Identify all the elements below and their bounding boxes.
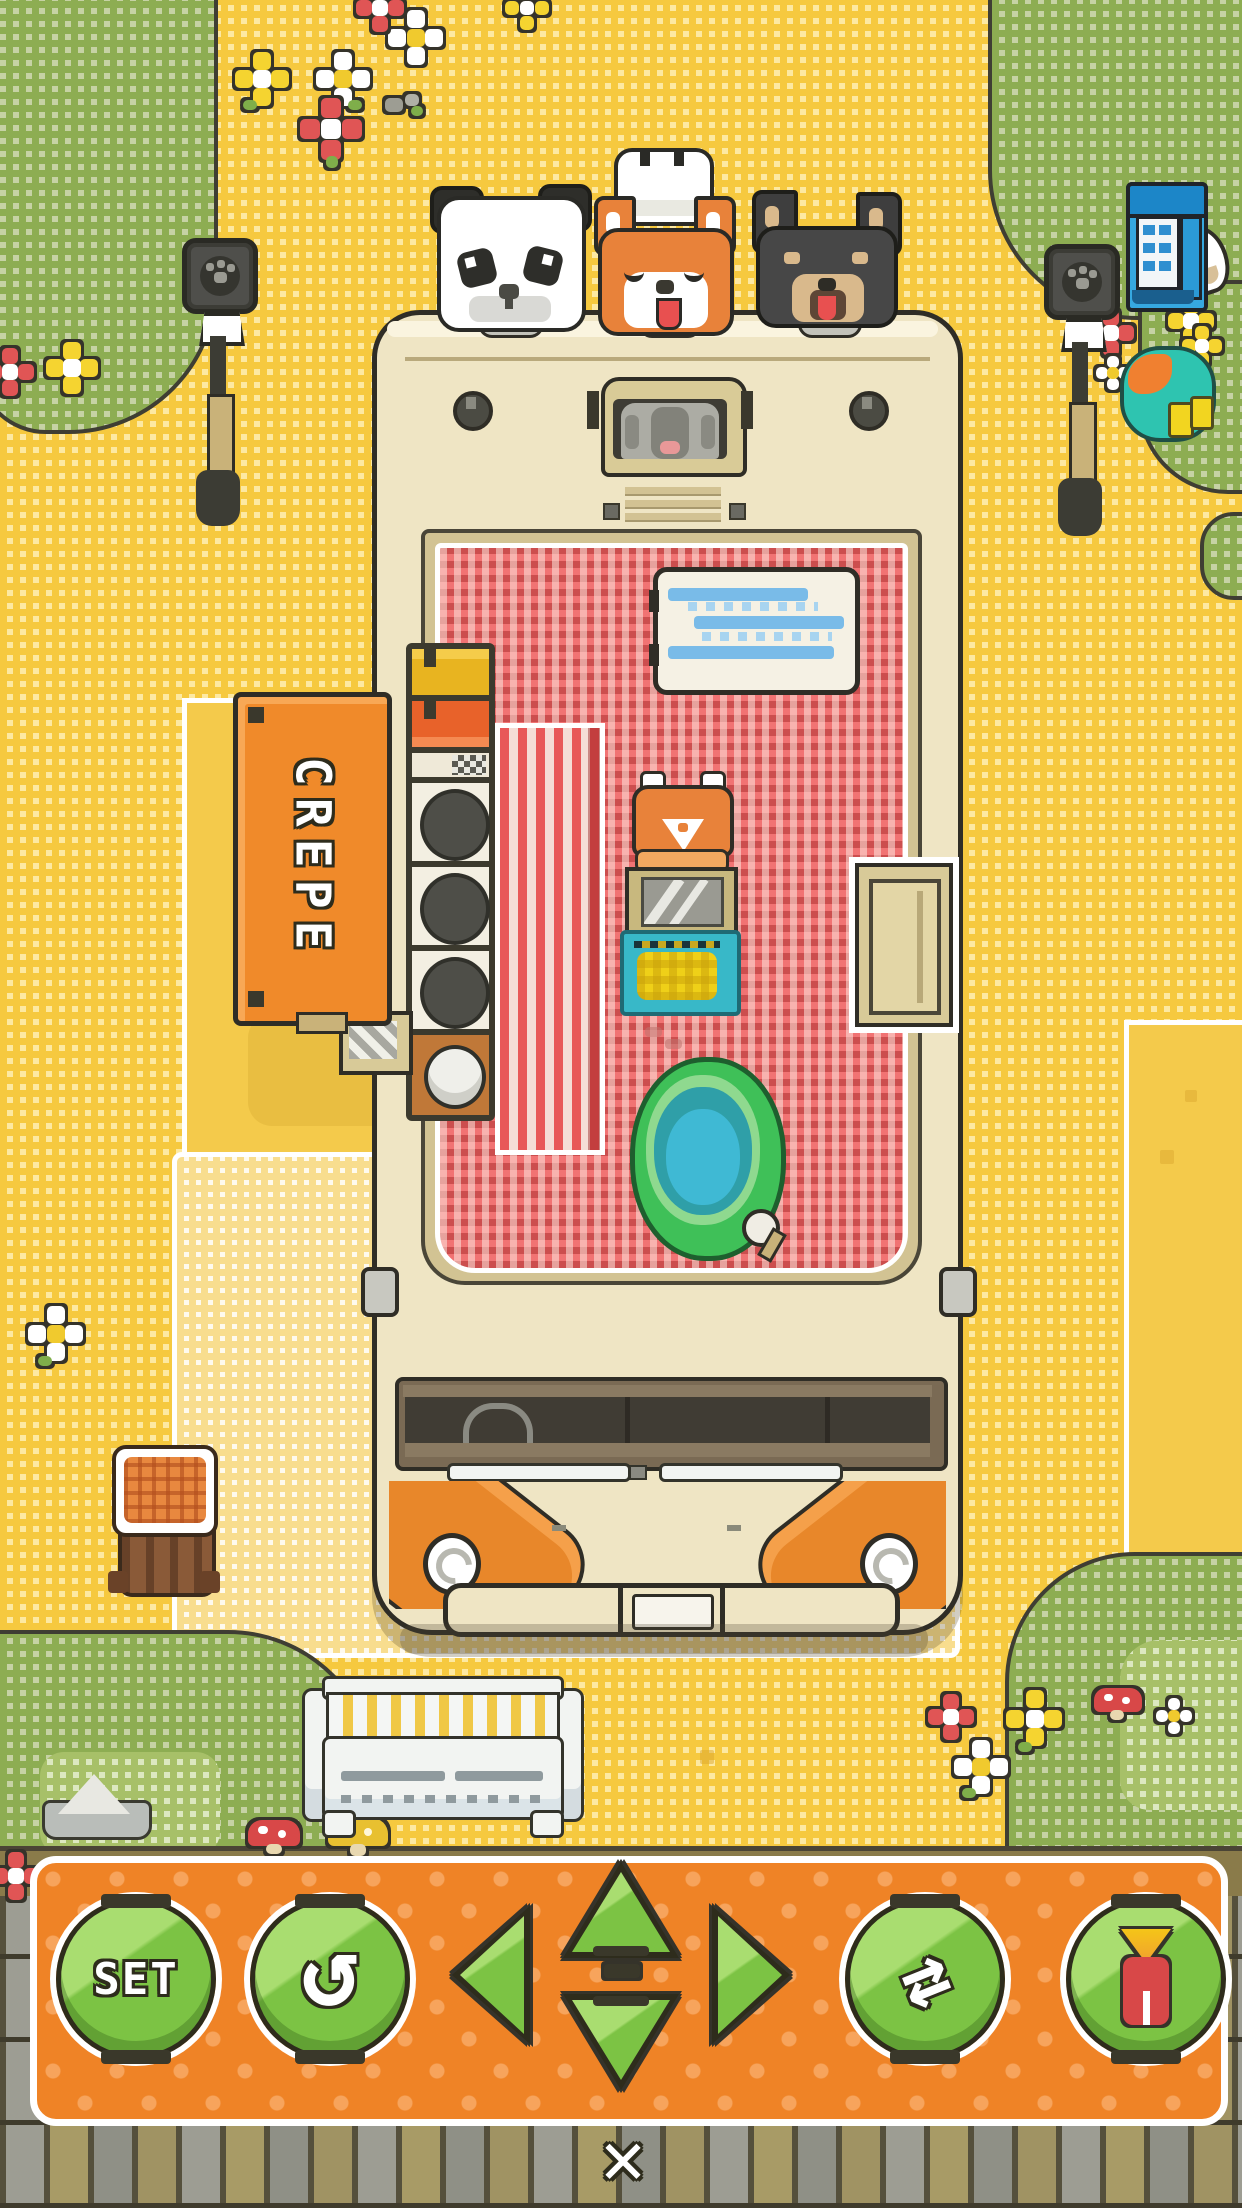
close-button[interactable]: ✕	[578, 2116, 668, 2200]
shop-button[interactable]	[1066, 1898, 1226, 2060]
bshiba-ear-inner	[765, 206, 779, 228]
vent-bolt	[603, 503, 620, 520]
mirror-left	[361, 1267, 399, 1317]
dpad-center	[604, 1964, 640, 1978]
cooler-hinge	[649, 644, 659, 666]
bench-foot	[530, 1810, 564, 1838]
cooler-box	[653, 567, 860, 695]
footprint	[645, 1027, 662, 1037]
lamp-foot	[1058, 478, 1102, 536]
sign-rod	[296, 1012, 348, 1034]
lamp-head	[182, 238, 258, 314]
bucket-water-light	[666, 1109, 740, 1205]
plate-cell	[412, 1035, 489, 1115]
roof-knob	[453, 391, 493, 431]
wiper	[659, 1463, 843, 1482]
paw-icon	[1062, 262, 1102, 302]
mirror-right	[939, 1267, 977, 1317]
ground-speckle	[1185, 1090, 1197, 1102]
yellow-flower	[505, 0, 549, 30]
griddle-cell	[412, 783, 489, 861]
street-lamp-right	[1044, 244, 1116, 556]
seat-groove	[455, 1771, 543, 1781]
crepe-sign-text: CREPE	[238, 697, 387, 1021]
vending-door	[1180, 216, 1202, 300]
knob-slot	[862, 397, 872, 409]
white-daisy	[28, 1306, 84, 1362]
panda-mouth	[505, 299, 513, 309]
bshiba-nose	[818, 278, 836, 291]
panda-eye-patch	[455, 246, 499, 290]
bench-slats	[326, 1692, 560, 1742]
bench-seat	[322, 1736, 564, 1820]
steering-wheel	[463, 1403, 533, 1443]
door-line	[917, 891, 923, 1003]
water-bucket	[630, 1057, 776, 1251]
truck-shadow	[400, 1624, 928, 1654]
pebbles	[385, 94, 425, 116]
roof-window	[613, 399, 727, 459]
batter-cart	[620, 930, 741, 1016]
black-shiba	[750, 186, 896, 330]
seat-dots	[341, 1795, 545, 1803]
red-mushroom	[248, 1820, 300, 1854]
white-daisy-small	[1156, 1698, 1192, 1734]
griddle-cell	[412, 867, 489, 945]
roof-knob	[849, 391, 889, 431]
street-lamp-left	[182, 238, 254, 538]
hood-dash	[727, 1525, 741, 1531]
panda-eye	[464, 256, 476, 268]
picnic-set	[1120, 346, 1212, 438]
paw-icon	[200, 256, 240, 296]
griddle-burner	[420, 957, 490, 1029]
arrow-right-icon	[718, 1916, 782, 2034]
yellow-flower	[1006, 1690, 1064, 1748]
shelf-crate-yellow	[412, 649, 489, 695]
seat-groove	[341, 1771, 445, 1781]
picnic-stool	[1190, 396, 1214, 430]
crate-notch	[424, 701, 436, 719]
cart-zip	[634, 941, 720, 948]
chef-nose	[678, 823, 688, 832]
plate	[424, 1045, 486, 1109]
yellow-flower	[235, 52, 289, 106]
shelf-tiles	[412, 753, 489, 777]
cooler-stripe	[694, 616, 844, 629]
crepe-sign: CREPE	[233, 692, 392, 1026]
koala-ear	[625, 415, 639, 449]
knob-slot	[466, 397, 476, 409]
truck-rear-seam	[405, 357, 930, 361]
checker-tile	[452, 755, 486, 775]
stump-root	[200, 1571, 220, 1593]
undo-button[interactable]: ↺	[250, 1898, 410, 2060]
cycle-button[interactable]: ⇄	[845, 1898, 1005, 2060]
rock	[42, 1774, 146, 1834]
game-screen: CREPE SET ↺	[0, 0, 1242, 2208]
bshiba-tongue	[818, 296, 836, 320]
dashboard	[405, 1443, 930, 1457]
vent-slat	[625, 487, 721, 496]
waffle-stump	[112, 1445, 216, 1595]
panda-nose	[499, 284, 519, 299]
bshiba-muzzle	[792, 274, 864, 322]
wiper	[447, 1463, 631, 1482]
hat-notch	[640, 150, 650, 166]
move-left-button[interactable]	[452, 1906, 530, 2044]
ground-speckle	[700, 1750, 714, 1764]
windshield-glass	[405, 1397, 930, 1443]
windshield-top-trim	[403, 1385, 932, 1397]
griddle-burner	[420, 789, 490, 861]
koala-face	[621, 403, 719, 459]
red-flower	[300, 98, 362, 160]
hood-dash	[552, 1525, 566, 1531]
wiper-hinge	[629, 1465, 647, 1480]
shop-stall-icon	[1119, 1929, 1173, 2029]
move-down-button[interactable]	[563, 1994, 679, 2090]
vent-bolt	[729, 503, 746, 520]
vent-slat	[625, 500, 721, 509]
bench	[302, 1676, 578, 1834]
stump-root	[108, 1571, 128, 1593]
white-daisy	[954, 1740, 1008, 1794]
waffle	[124, 1457, 206, 1523]
arrow-down-icon	[572, 2000, 670, 2080]
side-door-alcove	[855, 863, 953, 1027]
roof-window-frame	[601, 377, 747, 477]
sign-bolt	[248, 707, 264, 723]
griddle-burner	[420, 873, 490, 945]
chef-shiba-top	[632, 785, 730, 867]
stump-top	[112, 1445, 218, 1537]
yellow-flower	[46, 342, 98, 394]
griddle-cell	[412, 951, 489, 1029]
glass-divider	[825, 1397, 830, 1443]
move-up-button[interactable]	[563, 1862, 679, 1958]
shiba-nose	[656, 280, 674, 294]
set-button-label: SET	[61, 1903, 211, 2055]
panda-eye-patch	[521, 244, 565, 288]
windshield	[395, 1377, 948, 1471]
shiba-chef	[594, 148, 730, 330]
cooler-stripe	[668, 646, 834, 659]
cooler-stripe	[668, 588, 808, 601]
ground-speckle	[1160, 1150, 1174, 1164]
shiba-head	[598, 228, 734, 336]
vending-roof	[1126, 182, 1208, 218]
panda	[425, 158, 590, 330]
arrow-up-icon	[572, 1872, 670, 1952]
koala-ear	[701, 415, 715, 449]
bench-foot	[322, 1810, 356, 1838]
chef-head	[632, 785, 734, 857]
cooler-dots	[688, 602, 818, 611]
red-mushroom	[1094, 1688, 1142, 1720]
lamp-pole	[210, 336, 226, 394]
glass-divider	[625, 1397, 630, 1443]
shiba-tongue	[656, 298, 682, 330]
bshiba-brow	[784, 252, 800, 264]
footprint	[665, 1039, 682, 1049]
griddle-shelf	[406, 643, 495, 1121]
arrow-left-icon	[460, 1916, 524, 2034]
window-pillar	[741, 391, 753, 429]
crepe-truck	[372, 310, 963, 1635]
striped-runner-rug	[495, 723, 605, 1155]
koala-mouth	[660, 441, 680, 454]
bracket-hinge	[349, 1021, 397, 1059]
window-pillar	[587, 391, 599, 429]
vent-slat	[625, 513, 721, 522]
lamp-head	[1044, 244, 1120, 320]
red-flower	[928, 1694, 974, 1740]
crepe-dough	[637, 952, 717, 1000]
hat-notch	[674, 150, 684, 166]
panda-head	[437, 196, 586, 332]
vending-base	[1132, 290, 1194, 304]
undo-icon: ↺	[255, 1895, 405, 2047]
vending-machine	[1126, 182, 1208, 312]
griddle-plate	[641, 877, 724, 927]
lamp-pole-wood	[207, 394, 235, 476]
cooler-dots	[702, 632, 832, 641]
panda-eye	[542, 254, 554, 266]
crepe-griddle-table	[625, 867, 738, 937]
crate-notch	[424, 649, 436, 667]
shelf-crate-orange	[412, 701, 489, 747]
lamp-pole	[1072, 342, 1088, 402]
move-right-button[interactable]	[712, 1906, 790, 2044]
bshiba-head	[756, 226, 898, 328]
side-door	[869, 879, 941, 1015]
sign-bolt	[248, 991, 264, 1007]
lamp-foot	[196, 470, 240, 526]
rock-top	[58, 1774, 130, 1814]
shop-door	[1143, 1991, 1150, 2025]
vending-window	[1136, 216, 1180, 290]
lamp-pole-wood	[1069, 402, 1097, 484]
grass-blob-right	[1200, 512, 1242, 600]
bshiba-brow	[852, 252, 868, 264]
red-flower	[0, 348, 34, 396]
red-flower	[356, 0, 404, 32]
set-button[interactable]: SET	[56, 1898, 216, 2060]
cooler-hinge	[649, 590, 659, 612]
